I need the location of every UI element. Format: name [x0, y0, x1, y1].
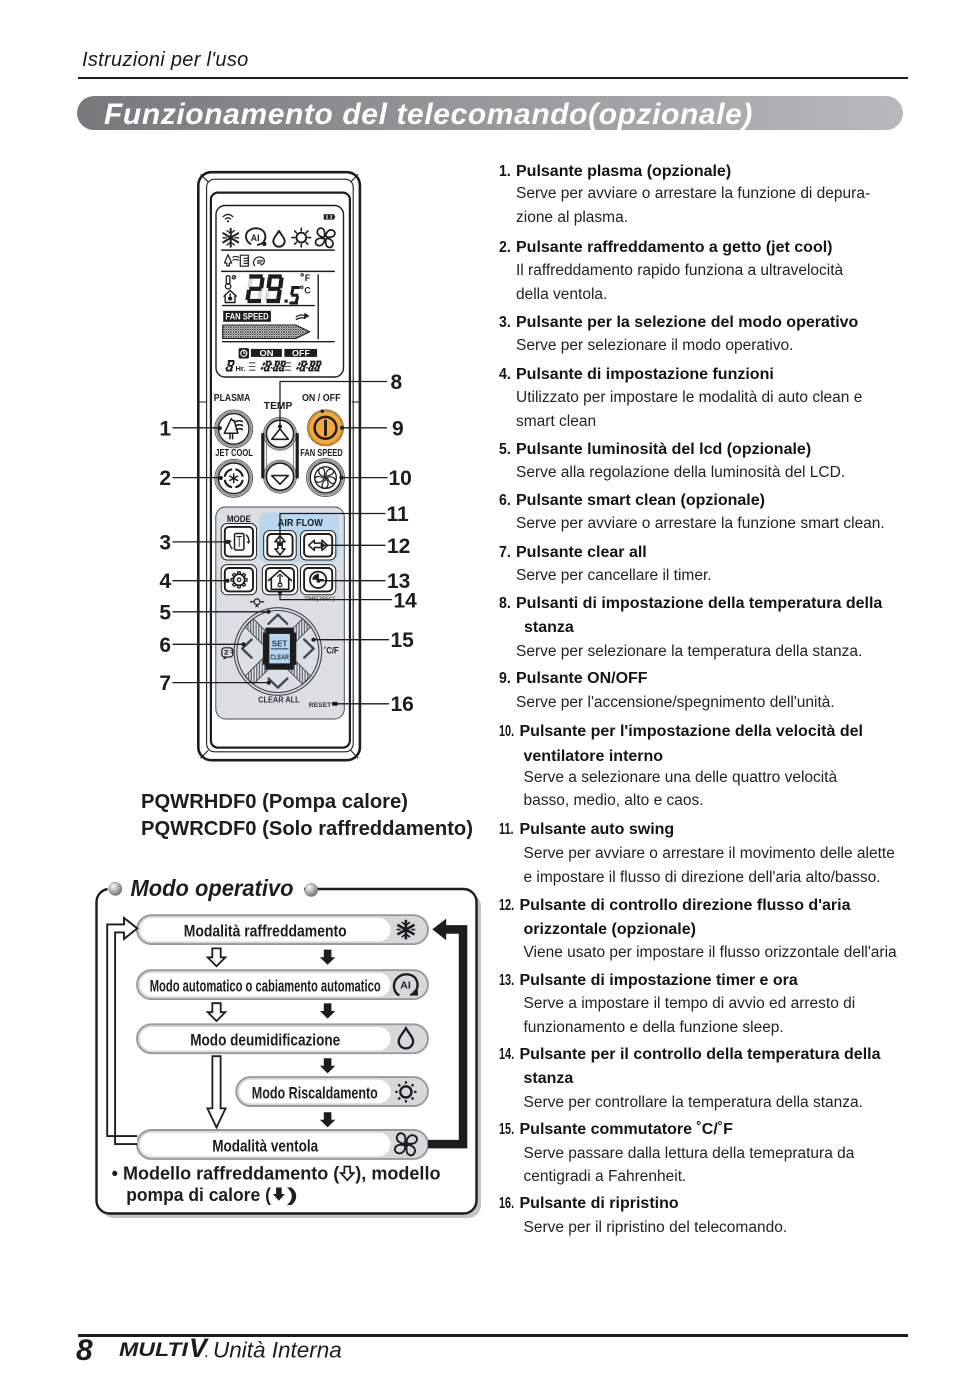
svg-text:TEMP: TEMP: [264, 400, 293, 412]
svg-text:FAN SPEED: FAN SPEED: [300, 447, 343, 459]
svg-text:AI: AI: [251, 233, 260, 243]
svg-text:FAN SPEED: FAN SPEED: [225, 312, 268, 322]
svg-text:1: 1: [159, 417, 171, 440]
svg-text:Modalità ventola: Modalità ventola: [212, 1137, 319, 1155]
svg-text:4: 4: [159, 570, 171, 593]
svg-text:F: F: [305, 273, 311, 283]
svg-text:AI: AI: [400, 980, 411, 992]
svg-text:Hr.: Hr.: [236, 364, 246, 373]
svg-text:PLASMA: PLASMA: [214, 392, 251, 404]
svg-text:˚C/F: ˚C/F: [324, 646, 339, 656]
svg-text:Modo automatico o cabiamento a: Modo automatico o cabiamento automatico: [150, 978, 381, 996]
svg-text:): ): [287, 1185, 298, 1205]
svg-text:• Modello raffreddamento (: • Modello raffreddamento (: [112, 1163, 340, 1183]
svg-text:CLEAR: CLEAR: [270, 653, 289, 662]
svg-text:14: 14: [394, 589, 418, 612]
svg-text:16: 16: [391, 693, 414, 716]
svg-text:Unità Interna: Unità Interna: [213, 1338, 342, 1363]
svg-text:.: .: [205, 1346, 208, 1360]
svg-text:AIR FLOW: AIR FLOW: [278, 517, 323, 529]
svg-text:11: 11: [387, 503, 410, 526]
svg-text:ON: ON: [260, 348, 274, 358]
svg-text:CLEAR ALL: CLEAR ALL: [258, 695, 300, 704]
svg-text:OFF: OFF: [292, 348, 310, 358]
svg-text:Modo deumidificazione: Modo deumidificazione: [190, 1032, 340, 1050]
svg-text:10: 10: [389, 467, 412, 490]
svg-text:15: 15: [391, 629, 415, 652]
svg-text:RESET: RESET: [309, 702, 332, 709]
svg-text:3: 3: [159, 531, 171, 554]
svg-text:12: 12: [387, 535, 410, 558]
svg-text:MULTI: MULTI: [119, 1340, 189, 1361]
svg-text:Modalità raffreddamento: Modalità raffreddamento: [184, 923, 347, 941]
svg-text:8: 8: [391, 371, 403, 394]
svg-text:ON / OFF: ON / OFF: [302, 392, 341, 404]
svg-text:), modello: ), modello: [355, 1163, 440, 1183]
svg-text:JET COOL: JET COOL: [215, 447, 253, 459]
svg-text:SET: SET: [272, 639, 288, 648]
svg-text:6: 6: [159, 634, 171, 657]
svg-text:7: 7: [159, 672, 171, 695]
svg-text:9: 9: [392, 417, 404, 440]
svg-text:Modo Riscaldamento: Modo Riscaldamento: [252, 1084, 378, 1102]
svg-text:Modo operativo: Modo operativo: [131, 875, 294, 901]
svg-text:5: 5: [159, 601, 171, 624]
svg-text:pompa di calore (: pompa di calore (: [126, 1185, 271, 1205]
svg-text:2: 2: [159, 467, 171, 490]
svg-text:C: C: [304, 286, 311, 296]
